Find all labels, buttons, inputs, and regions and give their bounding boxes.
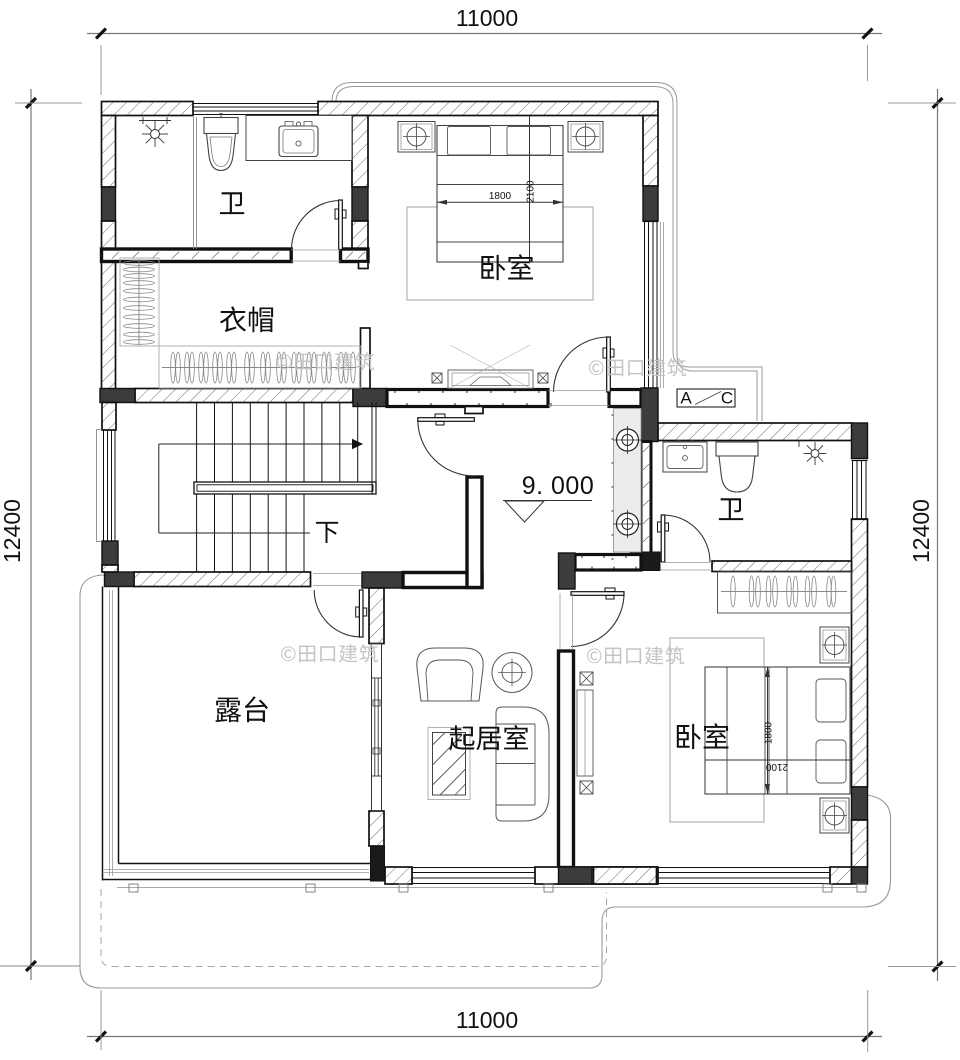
svg-text:11000: 11000 [456,5,518,31]
svg-text:A: A [680,389,692,408]
svg-text:2100: 2100 [526,180,537,203]
svg-text:11000: 11000 [456,1007,518,1033]
svg-text:12400: 12400 [0,499,25,563]
svg-text:2100: 2100 [765,761,788,772]
svg-text:12400: 12400 [908,499,934,563]
svg-text:1800: 1800 [764,721,775,744]
svg-text:9. 000: 9. 000 [522,472,595,500]
svg-text:C: C [721,389,733,408]
svg-text:1800: 1800 [489,191,512,202]
